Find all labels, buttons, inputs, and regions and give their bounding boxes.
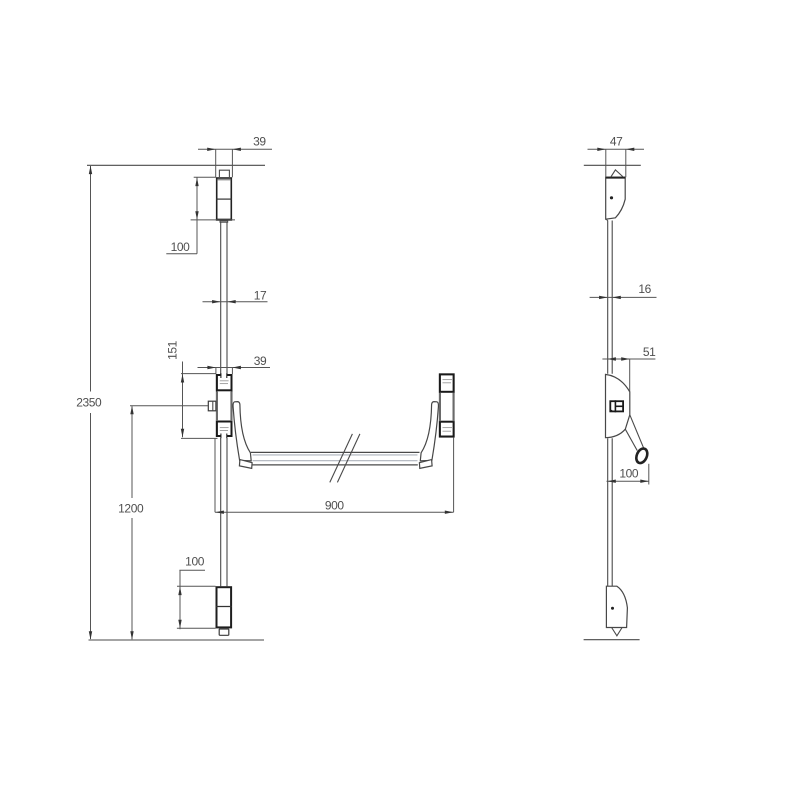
svg-text:900: 900 <box>325 499 345 513</box>
svg-text:39: 39 <box>253 135 266 149</box>
svg-text:151: 151 <box>165 340 179 360</box>
svg-text:100: 100 <box>619 467 639 481</box>
svg-text:16: 16 <box>638 282 651 296</box>
svg-text:47: 47 <box>610 135 623 149</box>
svg-text:39: 39 <box>254 354 267 368</box>
svg-text:2350: 2350 <box>76 395 102 409</box>
svg-text:1200: 1200 <box>118 501 144 515</box>
svg-text:100: 100 <box>185 554 205 568</box>
svg-text:17: 17 <box>254 288 267 302</box>
svg-text:51: 51 <box>643 345 656 359</box>
svg-text:100: 100 <box>171 240 191 254</box>
